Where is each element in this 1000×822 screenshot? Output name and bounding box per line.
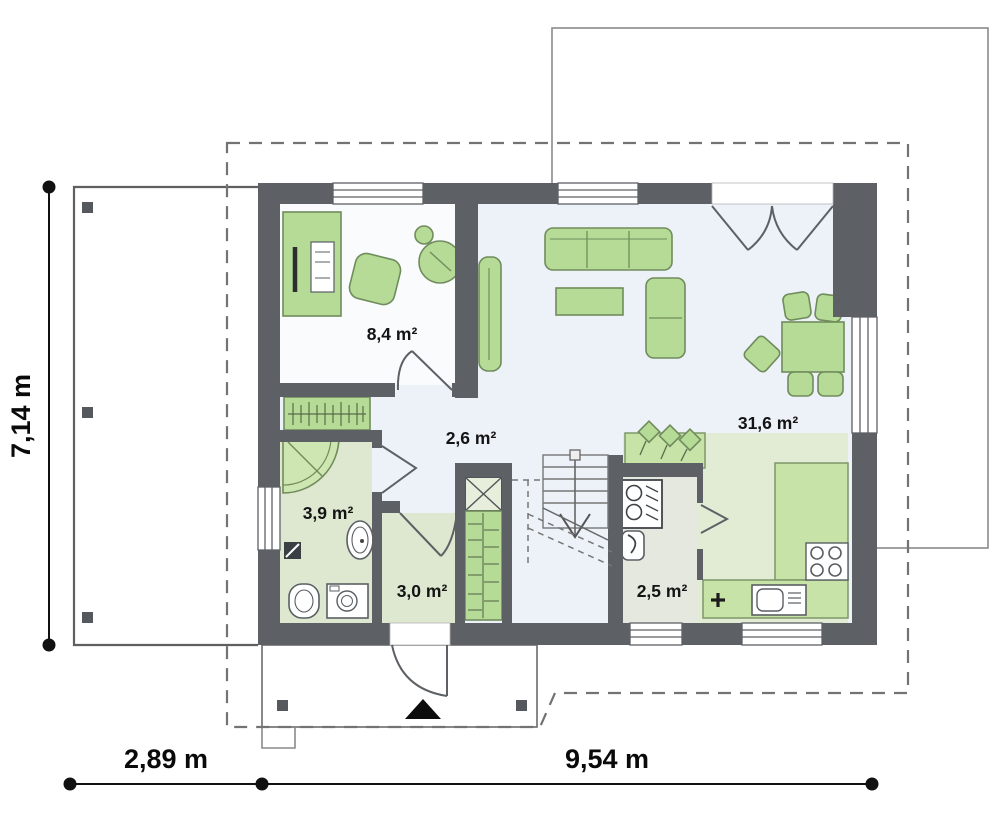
room-entry-hall-floor xyxy=(382,513,455,623)
wall-pantry-top xyxy=(623,463,703,477)
dining-chair xyxy=(818,372,843,396)
dimension-label-height: 7,14 m xyxy=(6,374,36,458)
hall-wardrobe xyxy=(284,397,370,430)
room-label-entry-hall: 3,0 m² xyxy=(397,581,448,601)
hob-burner xyxy=(811,564,823,576)
french-door-opening xyxy=(712,183,833,204)
plant xyxy=(419,241,461,283)
hob-burner xyxy=(811,547,823,559)
sink-drain xyxy=(360,539,364,543)
carport-post xyxy=(82,202,93,213)
desk-pc xyxy=(311,242,334,292)
wall-left xyxy=(258,183,280,645)
entrance-opening xyxy=(390,623,450,645)
dimension-label-house: 9,54 m xyxy=(565,744,649,774)
dining-chair xyxy=(788,372,813,396)
washing-machine xyxy=(327,584,368,618)
room-label-bathroom: 3,9 m² xyxy=(303,503,354,523)
carport-slab xyxy=(74,187,258,645)
window-office xyxy=(333,183,423,204)
wall-office-bottom xyxy=(280,383,395,397)
carport-post xyxy=(82,407,93,418)
stairs-newel xyxy=(570,450,580,460)
hob-burner xyxy=(829,564,841,576)
wall-office-stub xyxy=(452,383,478,397)
dimension-label-carport: 2,89 m xyxy=(124,744,208,774)
wall-corner-block xyxy=(833,183,877,317)
dining-table xyxy=(782,322,844,372)
carport xyxy=(74,187,258,645)
wall-pantry-right-a xyxy=(697,477,703,503)
porch-slab xyxy=(262,645,537,727)
sideboard xyxy=(479,257,501,371)
window-kitchen xyxy=(742,623,822,645)
coffee-table xyxy=(556,288,623,315)
room-label-office: 8,4 m² xyxy=(367,324,418,344)
room-label-kitchen: 2,5 m² xyxy=(637,581,688,601)
wall-column-left xyxy=(455,463,465,623)
wall-entry-hall-top xyxy=(382,501,400,513)
room-label-hall: 2,6 m² xyxy=(446,428,497,448)
room-label-living-room: 31,6 m² xyxy=(738,413,798,433)
wall-pantry-right-b xyxy=(697,549,703,580)
plant-small xyxy=(415,226,433,244)
utility-column xyxy=(465,477,502,620)
wall-bathroom-top xyxy=(280,430,372,442)
wall-stairs-right xyxy=(608,455,623,623)
porch-post xyxy=(516,700,527,711)
dining-chair xyxy=(782,291,812,321)
window-living-right xyxy=(852,317,877,433)
carport-post xyxy=(82,612,93,623)
toilet xyxy=(289,584,319,618)
hob-burner xyxy=(829,547,841,559)
porch-post xyxy=(277,700,288,711)
wall-bathroom-right-b xyxy=(372,492,382,623)
sofa xyxy=(545,228,672,270)
window-bathroom xyxy=(258,487,280,550)
window-pantry xyxy=(630,623,682,645)
window-living-top xyxy=(558,183,638,204)
wall-column-right xyxy=(502,463,512,623)
wall-office-living xyxy=(455,204,478,398)
floor-plan-drawing: 8,4 m² 2,6 m² 3,9 m² 3,0 m² 2,5 m² 31,6 … xyxy=(0,0,1000,822)
boiler xyxy=(622,531,644,560)
stove xyxy=(622,480,662,528)
floor-plan-page: 8,4 m² 2,6 m² 3,9 m² 3,0 m² 2,5 m² 31,6 … xyxy=(0,0,1000,822)
wall-bathroom-right-a xyxy=(372,430,382,448)
